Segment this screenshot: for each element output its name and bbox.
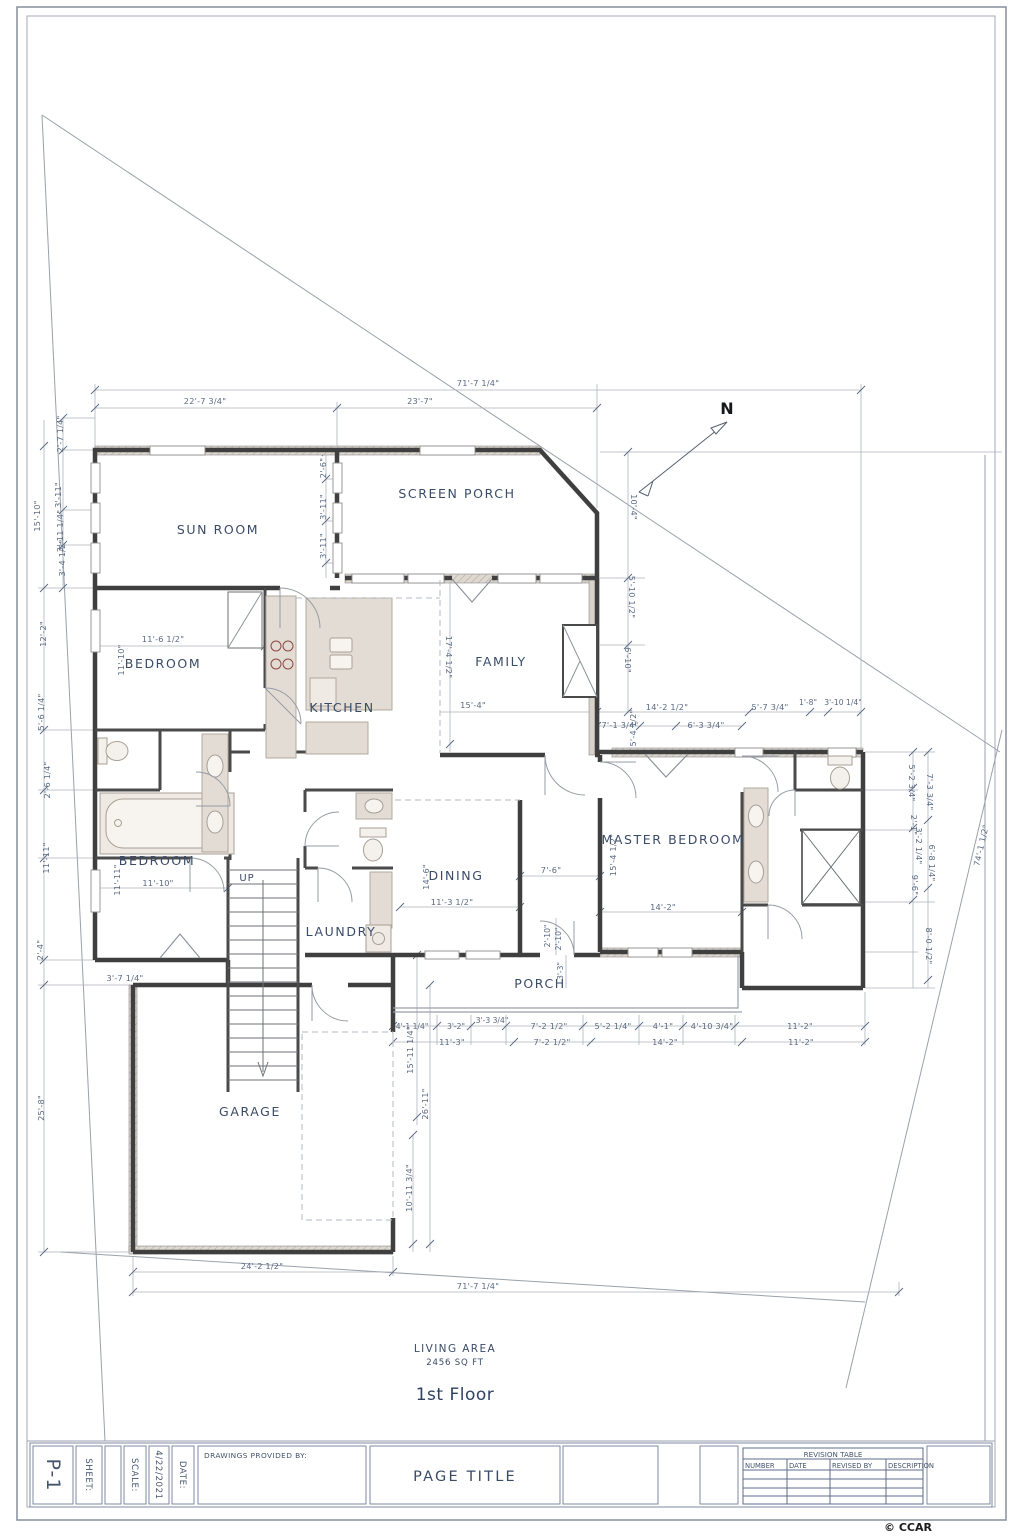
dim-label: 3'-11" [318, 494, 328, 520]
living-area-title: LIVING AREA [414, 1343, 496, 1355]
dim-label: 5'-7 3/4" [752, 702, 789, 712]
room-label-kitchen: KITCHEN [309, 700, 374, 715]
dim-label: 3'-2" [447, 1022, 465, 1031]
revision-table: REVISION TABLE NUMBER DATE REVISED BY DE… [743, 1448, 934, 1504]
revision-col-revised-by: REVISED BY [832, 1462, 873, 1470]
room-label-laundry: LAUNDRY [306, 924, 377, 939]
room-label-family: FAMILY [475, 654, 527, 669]
dim-label: 15'-10" [32, 500, 42, 531]
plan-notes: LIVING AREA 2456 SQ FT 1st Floor [414, 1343, 496, 1405]
dim-label: 2'-10" [543, 925, 552, 948]
dim-label: 7'-6" [541, 865, 561, 875]
dim-label: 6'-10" [623, 647, 633, 673]
dim-label: 3'-3" [556, 962, 565, 980]
room-label-dining: DINING [429, 868, 484, 883]
date-label: DATE: [177, 1461, 187, 1489]
property-lines [42, 115, 1002, 1441]
room-label-bedroom-1: BEDROOM [125, 656, 201, 671]
dim-label: 12'-2" [38, 621, 48, 647]
dim-label: 14'-2 1/2" [646, 702, 688, 712]
title-block-text: P-1 SHEET: SCALE: 4/22/2021 DATE: DRAWIN… [42, 1450, 517, 1499]
dim-label: 4'-10 3/4" [691, 1021, 733, 1031]
sheet-label: SHEET: [83, 1458, 93, 1492]
living-area-value: 2456 SQ FT [426, 1358, 484, 1368]
dim-label: 22'-7 3/4" [184, 396, 226, 406]
dim-label: 2'-7 1/4" [55, 416, 65, 453]
dim-label: 14'-6" [421, 864, 431, 890]
dim-label: 3'-7 1/4" [107, 973, 144, 983]
dim-label: 5'-2 3/4" [907, 765, 917, 802]
dim-label: 7'-2 1/2" [534, 1037, 571, 1047]
room-label-bedroom-2: BEDROOM [119, 853, 195, 868]
dim-label: 11'-10" [142, 878, 173, 888]
sheet-border [17, 7, 1006, 1520]
dim-label: 5'-6 1/4" [36, 694, 46, 731]
dim-label: 5'-4 1/2" [628, 710, 638, 747]
dim-label: 1'-8" [799, 698, 817, 707]
dim-label: 2'-10" [554, 928, 563, 951]
dim-label: 2'-4" [35, 940, 45, 960]
dim-label: 6'-8 1/4" [927, 845, 937, 882]
page-title: PAGE TITLE [413, 1469, 517, 1485]
blueprint-sheet: N SUN ROOM SCREEN PORCH BEDROOM KITCHEN … [0, 0, 1023, 1536]
revision-col-date: DATE [789, 1462, 807, 1470]
kitchen-counter [306, 722, 368, 754]
dim-label: 3'-11" [318, 533, 328, 559]
dim-label: 25'-8" [36, 1095, 46, 1121]
dim-label: 3'-2 1/4" [914, 828, 924, 865]
dim-label: 5'-2 1/4" [595, 1021, 632, 1031]
dim-label: 3'-11" [53, 482, 63, 508]
dim-label: 10'-11 3/4" [404, 1164, 414, 1212]
dim-label: 71'-7 1/4" [457, 1281, 499, 1291]
laundry-cabinet [370, 872, 392, 928]
dim-label: 11'-2" [788, 1037, 814, 1047]
dim-label: 9'-6" [910, 875, 920, 895]
toilet [98, 738, 128, 764]
dim-label: 2'-6 1/4" [42, 762, 52, 799]
dim-label: 71'-7 1/4" [457, 378, 499, 388]
revision-col-description: DESCRIPTION [888, 1462, 934, 1470]
dim-label: 15'-11 1/4" [405, 1026, 415, 1074]
floor-plan-drawing: N SUN ROOM SCREEN PORCH BEDROOM KITCHEN … [0, 0, 1023, 1536]
dim-label: 11'-2" [787, 1021, 813, 1031]
dim-label: 11'-10" [116, 644, 126, 675]
scale-label: SCALE: [129, 1458, 139, 1492]
dim-label: 17'-4 1/2" [444, 636, 454, 678]
dim-label: 4'-1" [653, 1021, 673, 1031]
dim-label: 6'-3 3/4" [688, 720, 725, 730]
porch-slab [393, 955, 742, 1012]
dim-label: 8'-0 1/2" [924, 928, 934, 965]
dim-label: 10'-4" [629, 494, 639, 520]
drawings-by-label: DRAWINGS PROVIDED BY: [204, 1451, 307, 1460]
floor-label: 1st Floor [416, 1385, 495, 1405]
dim-label: 2'-6" [318, 458, 328, 478]
dim-label: 11'-6 1/2" [142, 634, 184, 644]
dim-label: 11'-3 1/2" [431, 897, 473, 907]
toilet [828, 756, 852, 789]
dim-label: 15'-4 1/2" [608, 834, 618, 876]
dim-label: 14'-2" [652, 1037, 678, 1047]
dim-label: 23'-7" [407, 396, 433, 406]
north-label: N [720, 399, 733, 418]
dim-label: 11'-11" [112, 864, 122, 895]
dim-label: 3'-3 3/4" [476, 1016, 509, 1025]
room-label-garage: GARAGE [219, 1104, 281, 1119]
room-label-sun-room: SUN ROOM [177, 522, 259, 537]
dim-label: 11'-11" [41, 842, 51, 873]
dim-label: 7'-2 1/2" [531, 1021, 568, 1031]
copyright-watermark: © CCAR [884, 1521, 932, 1534]
room-label-screen-porch: SCREEN PORCH [398, 486, 515, 501]
dim-label: 7'-3 3/4" [925, 774, 935, 811]
north-arrow: N [639, 399, 734, 496]
dim-label: 26'-11" [420, 1088, 430, 1119]
dim-label: 14'-2" [650, 902, 676, 912]
date-value: 4/22/2021 [153, 1450, 163, 1499]
revision-table-title: REVISION TABLE [804, 1450, 863, 1459]
room-label-master-bedroom: MASTER BEDROOM [601, 832, 744, 847]
revision-col-number: NUMBER [745, 1462, 775, 1470]
stairs [228, 870, 298, 1080]
toilet [360, 828, 386, 861]
dim-label: 15'-4" [460, 700, 486, 710]
stairs-up-label: UP [239, 873, 254, 884]
dim-label: 11'-3" [439, 1037, 465, 1047]
dim-label: 3'-4 1/2" [57, 540, 67, 577]
dim-label: 5'-10 1/2" [627, 576, 637, 618]
dim-label: 24'-2 1/2" [241, 1261, 283, 1271]
sheet-number: P-1 [42, 1459, 64, 1492]
kitchen-counter [266, 596, 296, 758]
dim-label: 3'-10 1/4" [824, 698, 861, 707]
vanity [202, 734, 228, 852]
